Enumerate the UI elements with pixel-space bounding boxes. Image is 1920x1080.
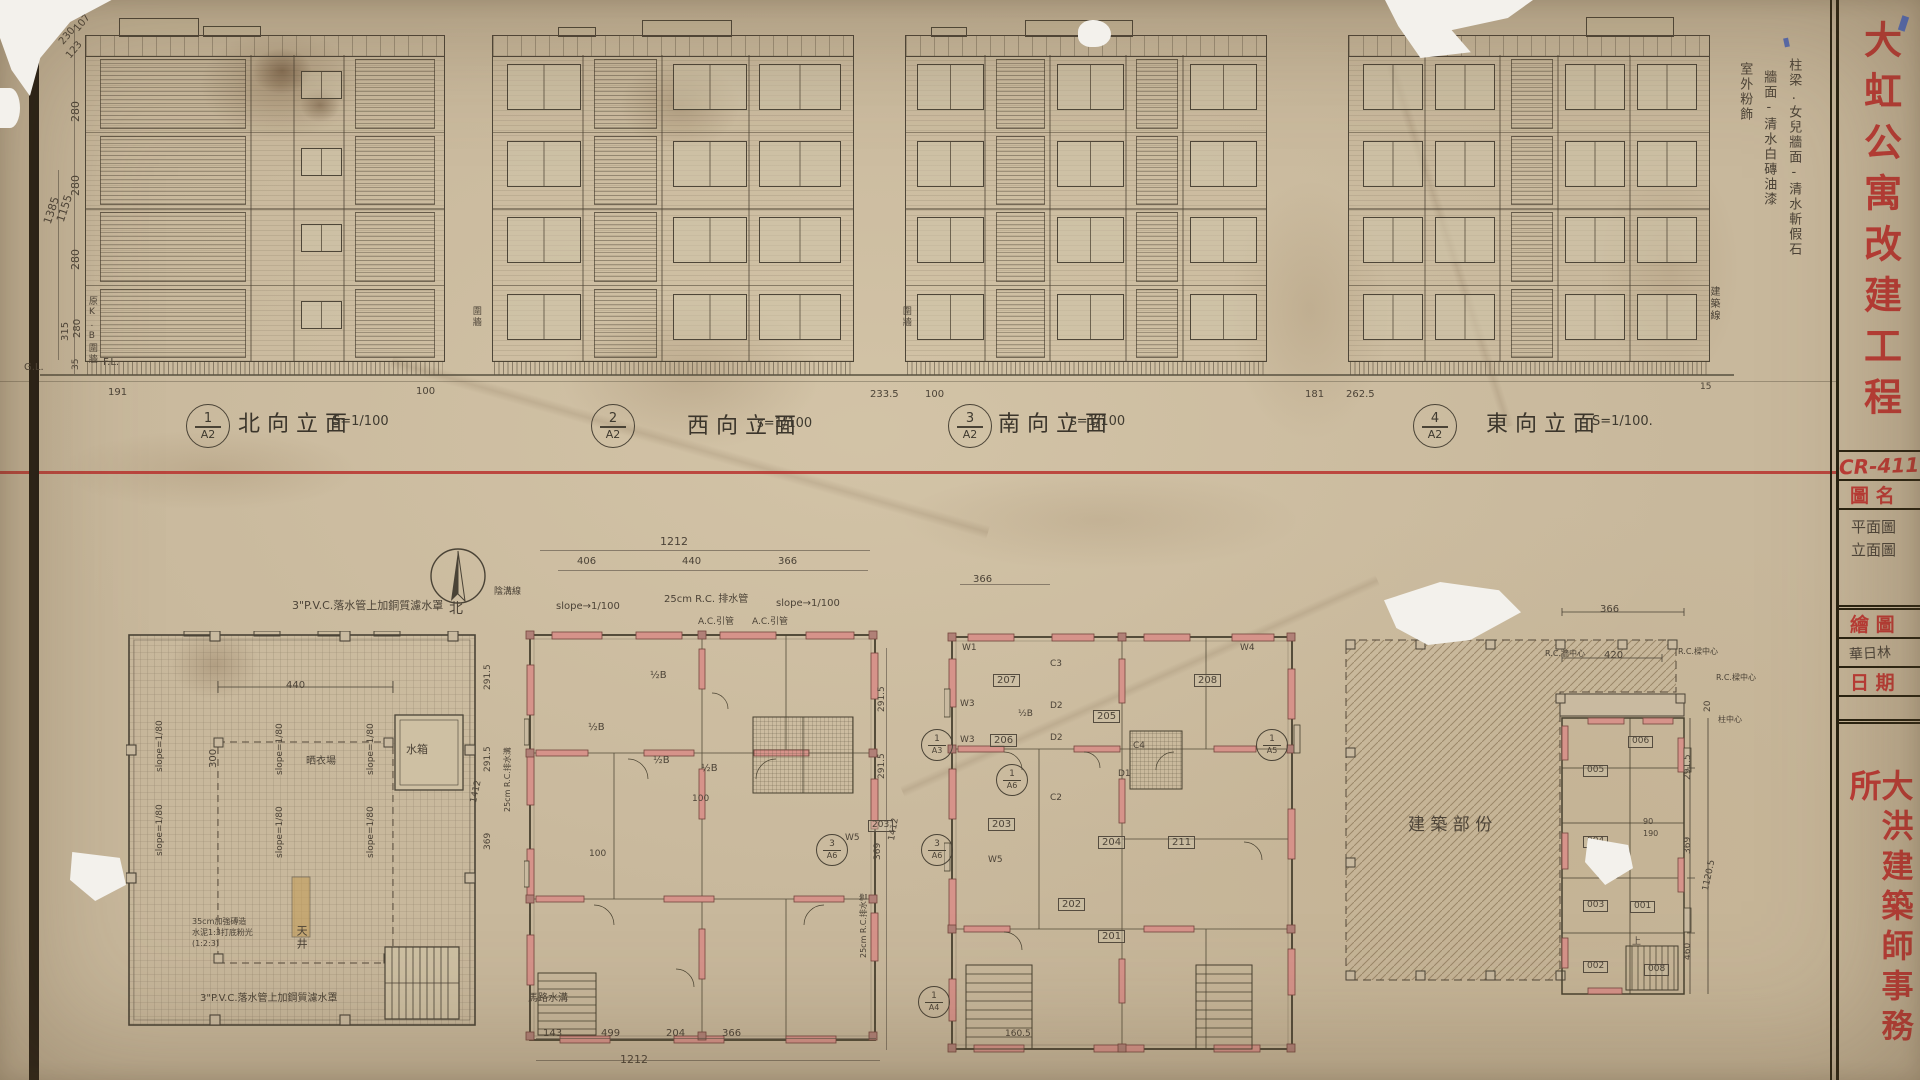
dim: 366 <box>722 1028 741 1039</box>
room-number: 203 <box>988 818 1015 831</box>
window <box>301 301 342 329</box>
dimension-line <box>540 550 870 551</box>
louver-panel <box>594 136 657 206</box>
elevation-scale: S=1/100. <box>1592 414 1653 429</box>
wall-tag: W1 <box>962 644 977 654</box>
callout-sheet: A2 <box>963 429 978 440</box>
elevation-title-east: 東向立面 <box>1486 406 1602 438</box>
window <box>507 217 581 263</box>
room-number: 005 <box>1583 765 1608 777</box>
roof-structure <box>1586 17 1674 37</box>
louver-panel <box>1511 212 1553 282</box>
wall-tag: W4 <box>1240 644 1255 654</box>
room-label: 天井 <box>295 925 307 951</box>
title-block: 大虹公寓改建工程 CR-411 圖 名 平面圖 立面圖 繪 圖 華日林 日 期 … <box>1836 0 1920 1080</box>
section-mark-sheet: A3 <box>932 747 943 755</box>
window <box>1190 141 1257 187</box>
blueprint-sheet: { "paper": {"red": "#bf3a35", "pencil": … <box>0 0 1920 1080</box>
floor-slab-line <box>906 285 1266 287</box>
room-number: 006 <box>1628 736 1653 748</box>
wall-tag: D2 <box>1050 702 1063 712</box>
pilaster-line <box>1557 55 1559 361</box>
elevation-callout-3: 3 A2 <box>948 404 992 448</box>
window <box>1435 294 1495 340</box>
dim: 35 <box>72 359 82 370</box>
pilaster-line <box>748 55 750 361</box>
window <box>507 141 581 187</box>
window <box>1363 141 1423 187</box>
note: 25cm R.C.排水溝 <box>504 747 513 812</box>
louver-panel <box>996 59 1045 129</box>
slope-note: slope→1/100 <box>556 601 620 612</box>
elevation-callout-2: 2 A2 <box>591 404 635 448</box>
dim: 100 <box>925 389 944 400</box>
callout-number: 3 <box>966 412 974 425</box>
wall-tag: C4 <box>1133 742 1145 752</box>
window <box>673 141 747 187</box>
base-hatch <box>494 361 852 375</box>
note: 上 <box>1632 938 1641 948</box>
section-mark-sheet: A6 <box>827 852 838 860</box>
section-mark: 1A5 <box>1256 729 1288 761</box>
dim: 366 <box>973 574 992 585</box>
louver-panel <box>1136 289 1178 359</box>
pilaster-line <box>1629 55 1631 361</box>
floor-slab-line <box>86 285 444 287</box>
title-block-project-cell: 大虹公寓改建工程 <box>1839 0 1920 452</box>
dim: 100 <box>589 850 606 860</box>
pilaster-line <box>661 55 663 361</box>
window <box>673 217 747 263</box>
louver-panel <box>996 289 1045 359</box>
louver-panel <box>1511 59 1553 129</box>
window <box>507 294 581 340</box>
dim: 369 <box>874 843 884 860</box>
window <box>301 148 342 176</box>
window <box>1363 64 1423 110</box>
base-hatch <box>87 361 443 375</box>
dim: 315 <box>60 322 71 341</box>
north-label: 北 <box>449 602 463 617</box>
dim: 291.5 <box>484 746 494 772</box>
window <box>673 294 747 340</box>
paper-stain <box>900 470 1300 570</box>
note: 水泥1:3打底粉光 <box>192 929 253 938</box>
wall-tag: W5 <box>845 834 860 844</box>
drafter-name: 華日林 <box>1849 641 1892 663</box>
section-mark: 1A6 <box>996 764 1028 796</box>
note: 圍牆 <box>470 306 480 328</box>
room-number: 201 <box>1098 930 1125 943</box>
note: (1:2:3) <box>192 940 219 949</box>
dimension-line <box>536 1038 876 1039</box>
floor-slab-line <box>493 285 853 287</box>
date-value-cell <box>1839 697 1920 724</box>
floor-slab-line <box>906 132 1266 134</box>
elevation-drawing-east <box>1348 35 1710 375</box>
dim: 280 <box>70 175 82 196</box>
facade-body <box>492 55 854 362</box>
dim: 369 <box>484 833 494 850</box>
note: 25cm R.C. 排水管 <box>664 594 748 605</box>
louver-panel <box>594 212 657 282</box>
parapet-cap <box>905 35 1267 57</box>
louver-panel <box>355 59 436 129</box>
section-mark-sheet: A4 <box>929 1004 940 1012</box>
dim: 366 <box>778 556 797 567</box>
window <box>917 141 984 187</box>
note: 建築線 <box>1708 286 1719 322</box>
dim: 191 <box>108 387 127 398</box>
dim: 233.5 <box>870 389 899 400</box>
room-number: 204 <box>1098 836 1125 849</box>
room-label: ½B <box>701 763 718 774</box>
paper-tear <box>70 852 126 901</box>
window <box>917 217 984 263</box>
floor-slab-line <box>906 208 1266 210</box>
dim: 160.5 <box>1005 1030 1031 1040</box>
firm-cell: 大洪建築師事務所 <box>1839 724 1920 1079</box>
note: R.C.樑中心 <box>1716 674 1756 683</box>
room-number: 002 <box>1583 961 1608 973</box>
wall-tag: C3 <box>1050 660 1062 670</box>
callout-sheet: A2 <box>606 429 621 440</box>
dim: 291.5 <box>878 686 888 712</box>
dim: 440 <box>682 556 701 567</box>
room-number: 205 <box>1093 710 1120 723</box>
sheet-number-cell: CR-411 <box>1839 452 1920 481</box>
window <box>1363 294 1423 340</box>
dim: 20 <box>1704 701 1714 712</box>
slope-note: slope=1/80 <box>276 723 286 775</box>
dim: 1412 <box>470 780 484 804</box>
date-label: 日 期 <box>1850 668 1895 695</box>
room-label: ½B <box>1018 710 1033 720</box>
window <box>1565 64 1625 110</box>
room-number: 202 <box>1058 898 1085 911</box>
window <box>1435 141 1495 187</box>
dim: 291.5 <box>1684 754 1694 780</box>
dim: 15 <box>1700 383 1711 393</box>
window <box>1435 64 1495 110</box>
window <box>673 64 747 110</box>
room-number: 008 <box>1644 964 1669 976</box>
pilaster-line <box>343 55 345 361</box>
dim: 1212 <box>620 1054 648 1066</box>
section-mark-number: 3 <box>829 840 835 849</box>
section-mark-number: 1 <box>1009 770 1015 779</box>
slope-note: slope→1/100 <box>776 598 840 609</box>
drafter-label: 繪 圖 <box>1850 610 1895 637</box>
parapet-cap <box>85 35 445 57</box>
drawing-name-label: 圖 名 <box>1850 481 1895 508</box>
parapet-cap <box>1348 35 1710 57</box>
room-label: ½B <box>653 755 670 766</box>
note: A.C.引管 <box>752 618 788 628</box>
room-number: 207 <box>993 674 1020 687</box>
dim: 300 <box>208 749 219 768</box>
dim: 499 <box>601 1028 620 1039</box>
window <box>759 64 840 110</box>
window <box>1057 64 1124 110</box>
dim: 291.5 <box>878 753 888 779</box>
louver-panel <box>100 136 245 206</box>
window <box>759 217 840 263</box>
window <box>1637 294 1697 340</box>
callout-number: 1 <box>204 412 212 425</box>
area-label: 建 築 部 份 <box>1408 816 1492 835</box>
room-label: 晒衣場 <box>306 756 336 767</box>
date-label-cell: 日 期 <box>1839 668 1920 697</box>
note: R.C.牆中心 <box>1545 650 1585 659</box>
drafter-label-cell: 繪 圖 <box>1839 610 1920 639</box>
window <box>301 224 342 252</box>
window <box>1637 141 1697 187</box>
section-mark-sheet: A6 <box>932 852 943 860</box>
window <box>1565 141 1625 187</box>
window <box>1190 217 1257 263</box>
note: 陰溝線 <box>494 588 521 598</box>
louver-panel <box>355 289 436 359</box>
room-label: ½B <box>588 722 605 733</box>
louver-panel <box>355 136 436 206</box>
louver-panel <box>594 289 657 359</box>
drafter-name-cell: 華日林 <box>1839 639 1920 668</box>
sheet-number: CR-411 <box>1839 452 1920 479</box>
note: 25cm R.C.排水管 <box>860 893 869 958</box>
window <box>1637 217 1697 263</box>
roof-plan-drawing <box>126 631 482 1031</box>
louver-panel <box>1136 212 1178 282</box>
floor-slab-line <box>493 208 853 210</box>
floor-slab-line <box>493 132 853 134</box>
note: 3"P.V.C.落水管上加銅質濾水罩 <box>292 600 443 612</box>
elevation-drawing-west <box>492 35 854 375</box>
floor-slab-line <box>86 132 444 134</box>
slope-note: slope=1/80 <box>367 723 377 775</box>
slope-note: slope=1/80 <box>276 806 286 858</box>
room-number: 211 <box>1168 836 1195 849</box>
wall-tag: C2 <box>1050 794 1062 804</box>
louver-panel <box>100 212 245 282</box>
louver-panel <box>100 289 245 359</box>
dimension-line <box>536 1060 880 1061</box>
note: 35cm加強磚造 <box>192 918 246 927</box>
pilaster-line <box>250 55 252 361</box>
pilaster-line <box>984 55 986 361</box>
window <box>917 64 984 110</box>
window <box>507 64 581 110</box>
window <box>1363 217 1423 263</box>
window <box>759 294 840 340</box>
floor-slab-line <box>86 208 444 210</box>
window <box>1057 141 1124 187</box>
ground-line-secondary <box>0 381 1836 382</box>
paper-tear <box>0 88 20 128</box>
base-hatch <box>1350 361 1708 375</box>
wall-tag: W5 <box>988 856 1003 866</box>
window <box>1435 217 1495 263</box>
elevation-scale: s=1/100 <box>1070 414 1125 429</box>
louver-panel <box>996 136 1045 206</box>
wall-tag: D2 <box>1050 734 1063 744</box>
pilaster-line <box>1049 55 1051 361</box>
section-mark: 3A6 <box>816 834 848 866</box>
parapet-cap <box>492 35 854 57</box>
level-label: F.L. <box>103 357 119 368</box>
project-title: 大虹公寓改建工程 <box>1861 20 1899 428</box>
dim: 406 <box>577 556 596 567</box>
callout-sheet: A2 <box>201 429 216 440</box>
callout-sheet: A2 <box>1428 429 1443 440</box>
wall-tag: D1 <box>1118 770 1131 780</box>
room-label: ½B <box>650 670 667 681</box>
dim: 440 <box>286 680 305 691</box>
elevation-drawing-north <box>85 35 445 375</box>
section-mark-number: 1 <box>934 735 940 744</box>
facade-body <box>1348 55 1710 362</box>
section-mark: 1A3 <box>921 729 953 761</box>
section-mark-number: 3 <box>934 840 940 849</box>
room-number: 004 <box>1583 836 1608 848</box>
note: R.C.樑中心 <box>1678 648 1718 657</box>
dim: 291.5 <box>484 664 494 690</box>
note: 原K.B圍牆 <box>86 296 96 365</box>
section-mark: 3A6 <box>921 834 953 866</box>
wall-tag: W3 <box>960 700 975 710</box>
base-hatch <box>907 361 1265 375</box>
louver-panel <box>1136 59 1178 129</box>
window <box>1190 64 1257 110</box>
callout-number: 2 <box>609 412 617 425</box>
floor-slab-line <box>1349 132 1709 134</box>
note: 3"P.V.C.落水管上加鋼質濾水罩 <box>200 993 338 1004</box>
dim: 420 <box>1604 650 1623 661</box>
slope-note: slope=1/80 <box>156 720 166 772</box>
room-number: 208 <box>1194 674 1221 687</box>
window <box>1565 217 1625 263</box>
dim: 204 <box>666 1028 685 1039</box>
drawing-name-cell: 平面圖 立面圖 <box>1839 510 1920 610</box>
dim: 143 <box>543 1028 562 1039</box>
blue-ink-mark <box>1783 38 1790 48</box>
finish-note: 室外粉飾 <box>1737 62 1751 122</box>
window <box>301 71 342 99</box>
section-mark-number: 1 <box>1269 735 1275 744</box>
window <box>1190 294 1257 340</box>
sheet-edge-band <box>29 58 39 1080</box>
window <box>1637 64 1697 110</box>
note: 馬路水溝 <box>528 993 568 1004</box>
dim: 280 <box>70 101 82 122</box>
dim: 369 <box>1684 837 1694 854</box>
louver-panel <box>100 59 245 129</box>
dim: 280 <box>70 249 82 270</box>
louver-panel <box>355 212 436 282</box>
note: 柱中心 <box>1718 716 1742 725</box>
dim: 262.5 <box>1346 389 1375 400</box>
section-mark-number: 1 <box>931 992 937 1001</box>
ground-floor-plan-drawing <box>944 629 1308 1059</box>
pilaster-line <box>1182 55 1184 361</box>
elevation-drawing-south <box>905 35 1267 375</box>
dim: 460 <box>1684 943 1694 960</box>
dim: 100 <box>416 386 435 397</box>
elevation-scale: s=1/100 <box>757 416 812 431</box>
elevation-callout-1: 1 A2 <box>186 404 230 448</box>
slope-note: slope=1/80 <box>156 804 166 856</box>
floor-slab-line <box>1349 208 1709 210</box>
wall-tag: W3 <box>960 736 975 746</box>
red-divider-line <box>0 471 1838 474</box>
ground-line <box>40 374 1734 376</box>
callout-number: 4 <box>1431 412 1439 425</box>
drawing-name-label-cell: 圖 名 <box>1839 481 1920 510</box>
dim: 190 <box>1643 830 1658 839</box>
floor-slab-line <box>1349 285 1709 287</box>
louver-panel <box>594 59 657 129</box>
section-mark: 1A4 <box>918 986 950 1018</box>
room-number: 001 <box>1630 901 1655 913</box>
louver-panel <box>1511 289 1553 359</box>
facade-body <box>85 55 445 362</box>
pilaster-line <box>1499 55 1501 361</box>
louver-panel <box>996 212 1045 282</box>
level-label: G.L. <box>24 362 44 373</box>
dim: 181 <box>1305 389 1324 400</box>
window <box>917 294 984 340</box>
dimension-line <box>558 570 868 571</box>
finish-note: 柱梁.女兒牆面-清水斬假石 <box>1786 58 1800 257</box>
dim: 90 <box>1643 818 1653 827</box>
elevation-callout-4: 4 A2 <box>1413 404 1457 448</box>
note: 圍牆 <box>900 306 910 328</box>
finish-note: 牆面-清水白磚油漆 <box>1761 70 1775 207</box>
dim: 280 <box>72 319 83 338</box>
paper-crease <box>390 355 990 539</box>
section-mark-sheet: A5 <box>1267 747 1278 755</box>
section-mark-sheet: A6 <box>1007 782 1018 790</box>
site-wing-plan-drawing <box>1338 598 1734 1070</box>
pilaster-line <box>293 55 295 361</box>
window <box>759 141 840 187</box>
note: A.C.引管 <box>698 618 734 628</box>
drawing-name-1: 平面圖 <box>1851 516 1908 539</box>
slope-note: slope=1/80 <box>367 806 377 858</box>
dim: 366 <box>1600 604 1619 615</box>
window <box>1057 217 1124 263</box>
louver-panel <box>1511 136 1553 206</box>
window <box>1565 294 1625 340</box>
window <box>1057 294 1124 340</box>
facade-body <box>905 55 1267 362</box>
louver-panel <box>1136 136 1178 206</box>
pilaster-line <box>1125 55 1127 361</box>
pilaster-line <box>1424 55 1426 361</box>
elevation-scale: S=1/100 <box>332 414 389 429</box>
room-number: 003 <box>1583 900 1608 912</box>
room-number: 203 <box>868 820 893 832</box>
dim: 100 <box>692 795 709 805</box>
room-label: 水箱 <box>406 744 428 756</box>
room-number: 206 <box>990 734 1017 747</box>
drawing-name-2: 立面圖 <box>1851 539 1908 562</box>
dim: 1212 <box>660 536 688 548</box>
firm-name: 大洪建築師事務所 <box>1848 769 1912 1079</box>
pilaster-line <box>582 55 584 361</box>
